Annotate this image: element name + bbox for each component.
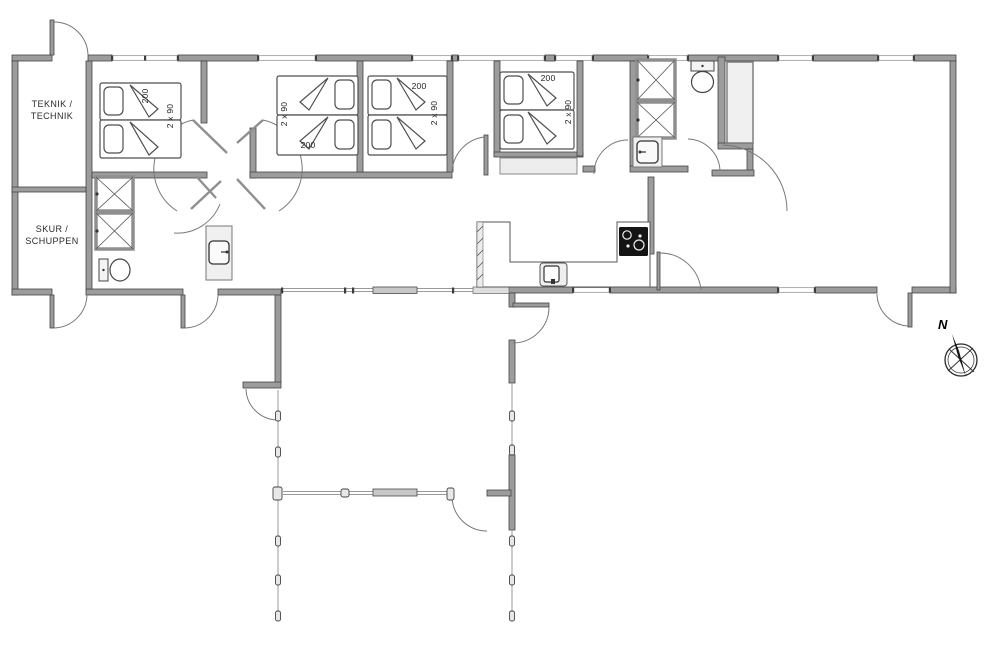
wardrobe <box>727 62 753 143</box>
skur-door <box>50 295 87 328</box>
bed-width-label: 2 x 90 <box>429 93 439 133</box>
bathroom2-fixtures <box>633 60 714 167</box>
bed-length-label: 200 <box>399 81 439 91</box>
compass-rose <box>945 334 977 377</box>
bed-width-label: 2 x 90 <box>279 94 289 134</box>
shower-cabin <box>636 60 675 100</box>
kitchen-living-door <box>657 252 701 290</box>
entrance-door <box>50 20 88 55</box>
living-room-door <box>723 145 787 211</box>
room-label-skur: SKUR / SCHUPPEN <box>12 224 92 247</box>
toilet <box>99 259 130 281</box>
bed-length-label: 200 <box>528 73 568 83</box>
shower-cabin <box>95 177 133 211</box>
shower-cabin <box>95 213 133 249</box>
kitchen-sink <box>540 263 567 286</box>
room-label-teknik-line1: TEKNIK / <box>12 99 92 111</box>
hall-south-door <box>181 295 218 328</box>
bed-length-label: 200 <box>140 76 150 116</box>
sink <box>206 226 232 280</box>
cooktop <box>619 227 648 256</box>
shower-cabin <box>636 102 675 138</box>
floor-plan-drawing <box>0 0 1000 667</box>
compass-needle <box>952 334 966 377</box>
sink <box>633 137 662 167</box>
room-label-skur-line2: SCHUPPEN <box>12 236 92 248</box>
bed-width-label: 2 x 90 <box>165 96 175 136</box>
room-label-teknik: TEKNIK / TECHNIK <box>12 99 92 122</box>
terrace-rail-door <box>452 497 487 531</box>
room-label-skur-line1: SKUR / <box>12 224 92 236</box>
windbreak-door <box>246 389 277 420</box>
toilet <box>691 61 714 93</box>
glazing-dining-south <box>281 287 509 294</box>
closet-door <box>452 135 488 175</box>
living-south-door <box>877 293 912 327</box>
kitchen-terrace-door <box>513 303 549 343</box>
bed-length-label: 200 <box>288 140 328 150</box>
room-label-teknik-line2: TECHNIK <box>12 111 92 123</box>
dresser <box>500 158 577 174</box>
floor-plan: TEKNIK / TECHNIK SKUR / SCHUPPEN 200 2 x… <box>0 0 1000 667</box>
terrace-fence <box>273 383 515 621</box>
kitchen <box>477 222 650 287</box>
bed-width-label: 2 x 90 <box>563 92 573 132</box>
compass-north-label: N <box>938 317 947 332</box>
